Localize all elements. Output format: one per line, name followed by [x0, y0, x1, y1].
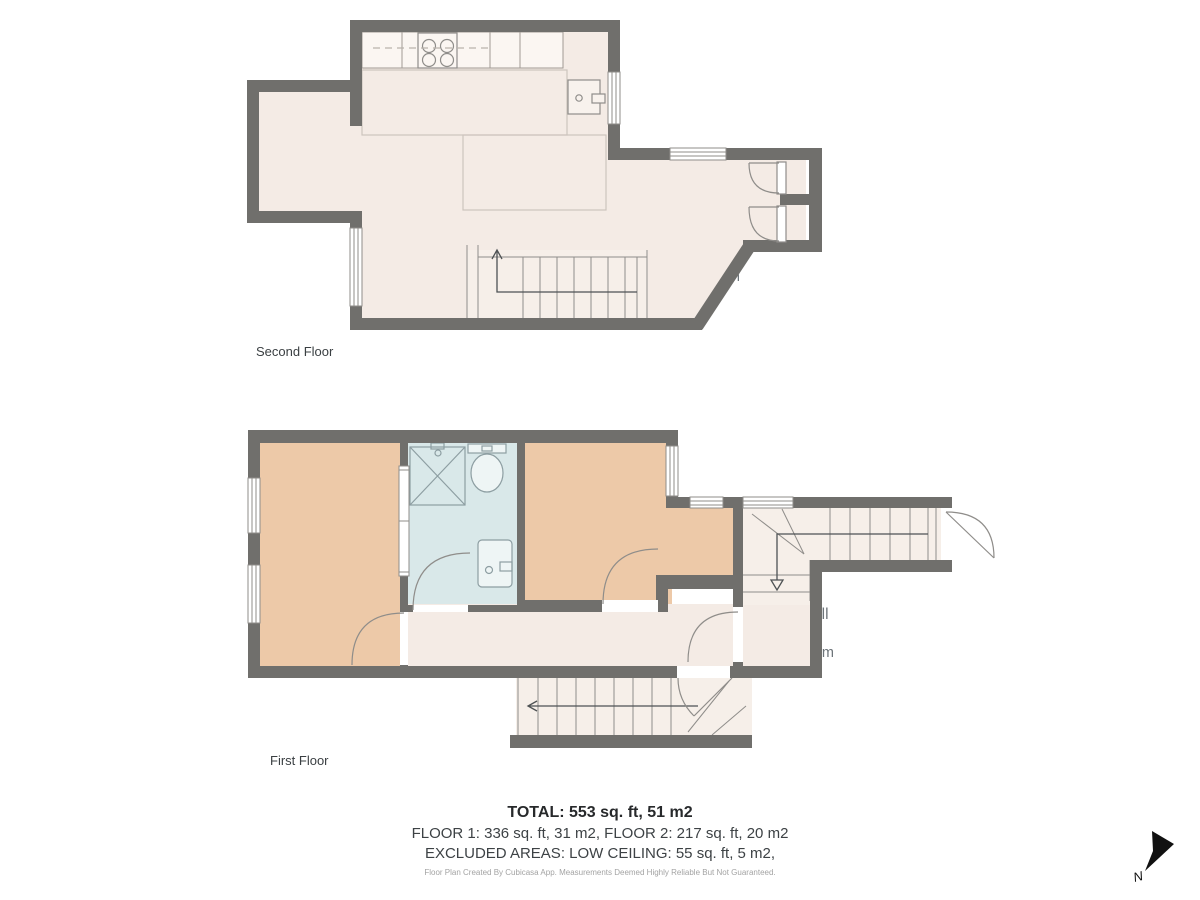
room-label-hall: Hall 16' x 4' 4.95 m x 1.29 m [518, 608, 622, 667]
room-dim-imperial: 12' x 7' [386, 219, 490, 239]
room-dim-metric: 4.95 m x 1.29 m [518, 647, 622, 667]
room-dim-metric: 3.73 m x 2.13 m [386, 239, 490, 259]
room-dim-metric: 2.16 m x 3.42 m [277, 593, 381, 613]
room-label-kitchen: Kitchen 17' x 8' 5.28 m x 2.30 m [386, 78, 490, 137]
room-labels-layer: Kitchen 17' x 8' 5.28 m x 2.30 m Living … [0, 0, 1200, 900]
room-name: Dining Area [636, 229, 740, 249]
room-name: Bedroom [277, 554, 381, 574]
room-dim-imperial: 16' x 4' [518, 627, 622, 647]
room-dim-metric: 1.03 m x 1.19 m [730, 644, 834, 664]
room-name: Entrance Hall [730, 605, 834, 625]
room-dim-imperial: 6' x 8' [407, 527, 511, 547]
room-label-entrance-hall: Entrance Hall 3' x 4' 1.03 m x 1.19 m [730, 605, 834, 664]
room-name: Shower Room [407, 508, 511, 528]
floorplan-canvas: Kitchen 17' x 8' 5.28 m x 2.30 m Living … [0, 0, 1200, 900]
room-dim-imperial: 17' x 8' [386, 97, 490, 117]
room-name: Kitchen [386, 78, 490, 98]
room-dim-imperial: 3' x 4' [730, 624, 834, 644]
room-dim-metric: 5.28 m x 2.30 m [386, 117, 490, 137]
room-dim-imperial: 7' x 11' [277, 573, 381, 593]
room-label-bedroom-right: Bedroom 10' x 8' 3.18 m x 2.49 m [563, 517, 667, 576]
room-label-shower-room: Shower Room 6' x 8' 1.67 m x 2.49 m [407, 508, 511, 567]
room-label-living-room: Living Room 12' x 7' 3.73 m x 2.13 m [386, 200, 490, 259]
room-name: Hall [518, 608, 622, 628]
room-label-bedroom-left: Bedroom 7' x 11' 2.16 m x 3.42 m [277, 554, 381, 613]
room-name: Living Room [386, 200, 490, 220]
room-label-dining-area: Dining Area 9' x 8' 2.59 m x 2.48 m [636, 229, 740, 288]
room-dim-metric: 3.18 m x 2.49 m [563, 556, 667, 576]
room-name: Bedroom [563, 517, 667, 537]
room-dim-imperial: 9' x 8' [636, 248, 740, 268]
room-dim-metric: 2.59 m x 2.48 m [636, 268, 740, 288]
room-dim-imperial: 10' x 8' [563, 536, 667, 556]
room-dim-metric: 1.67 m x 2.49 m [407, 547, 511, 567]
